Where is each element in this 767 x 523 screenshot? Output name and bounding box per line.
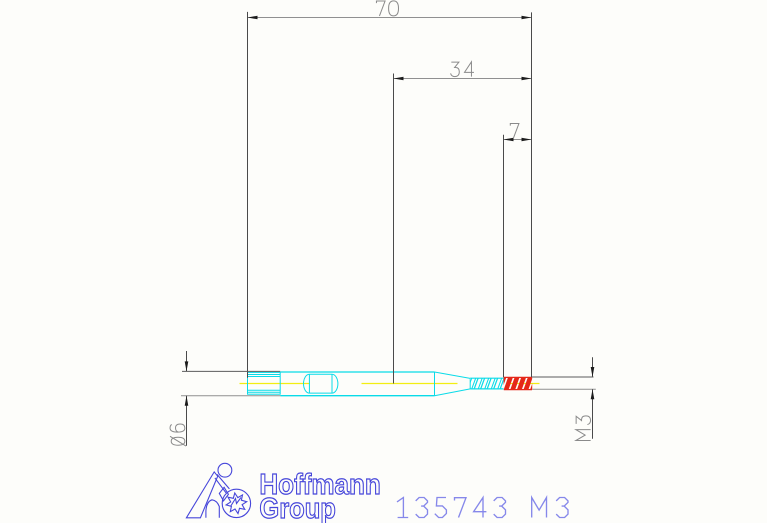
svg-text:Group: Group: [259, 493, 336, 523]
